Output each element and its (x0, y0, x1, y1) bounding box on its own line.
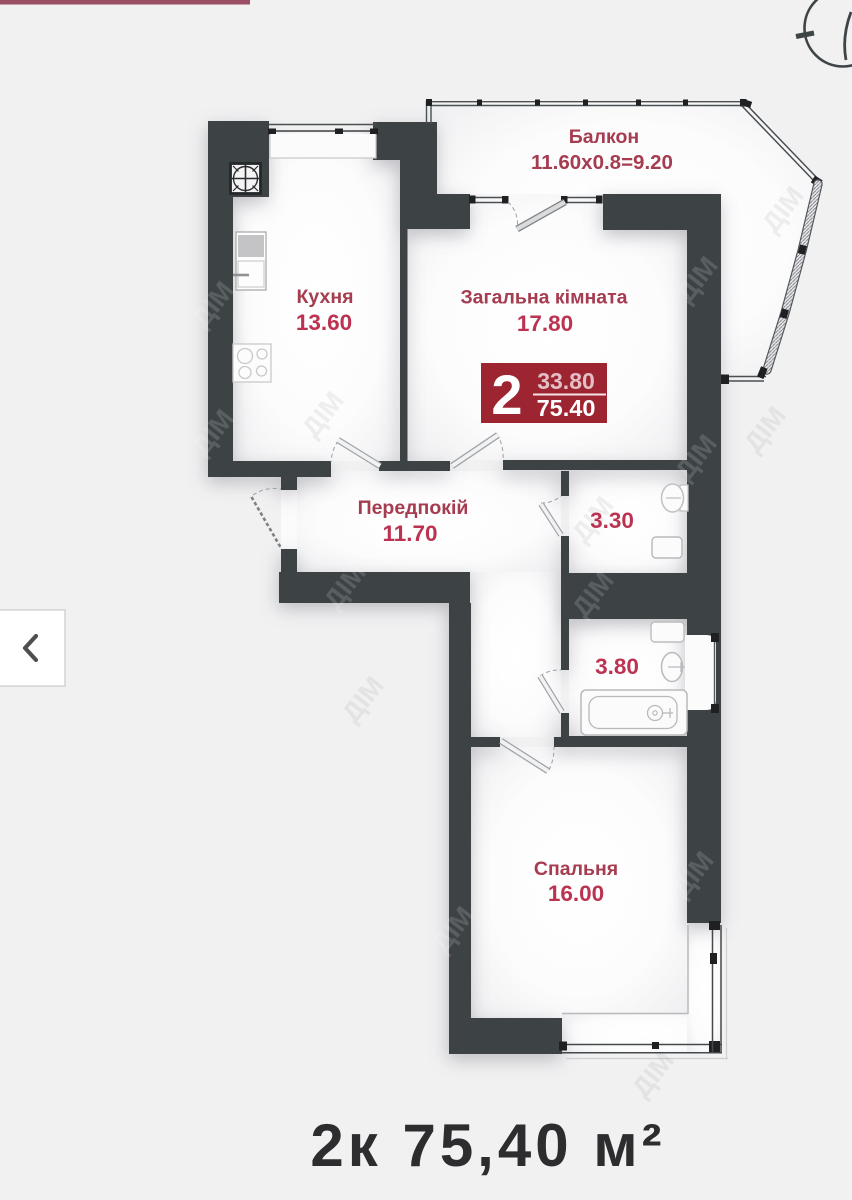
svg-text:Балкон: Балкон (569, 126, 639, 148)
svg-text:2: 2 (491, 363, 522, 426)
svg-text:3.80: 3.80 (595, 654, 639, 679)
svg-text:16.00: 16.00 (548, 881, 604, 906)
svg-text:Загальна кімната: Загальна кімната (460, 287, 627, 309)
svg-text:Передпокій: Передпокій (358, 497, 469, 519)
svg-text:75.40: 75.40 (537, 395, 596, 421)
svg-text:3.30: 3.30 (590, 508, 634, 533)
svg-text:11.60х0.8=9.20: 11.60х0.8=9.20 (531, 151, 673, 174)
svg-text:Кухня: Кухня (297, 286, 354, 308)
svg-text:Спальня: Спальня (534, 858, 618, 880)
svg-text:17.80: 17.80 (517, 311, 573, 336)
svg-text:2к 75,40 м²: 2к 75,40 м² (310, 1112, 665, 1179)
svg-text:13.60: 13.60 (296, 310, 352, 335)
svg-text:33.80: 33.80 (537, 368, 595, 394)
svg-text:11.70: 11.70 (382, 521, 437, 546)
